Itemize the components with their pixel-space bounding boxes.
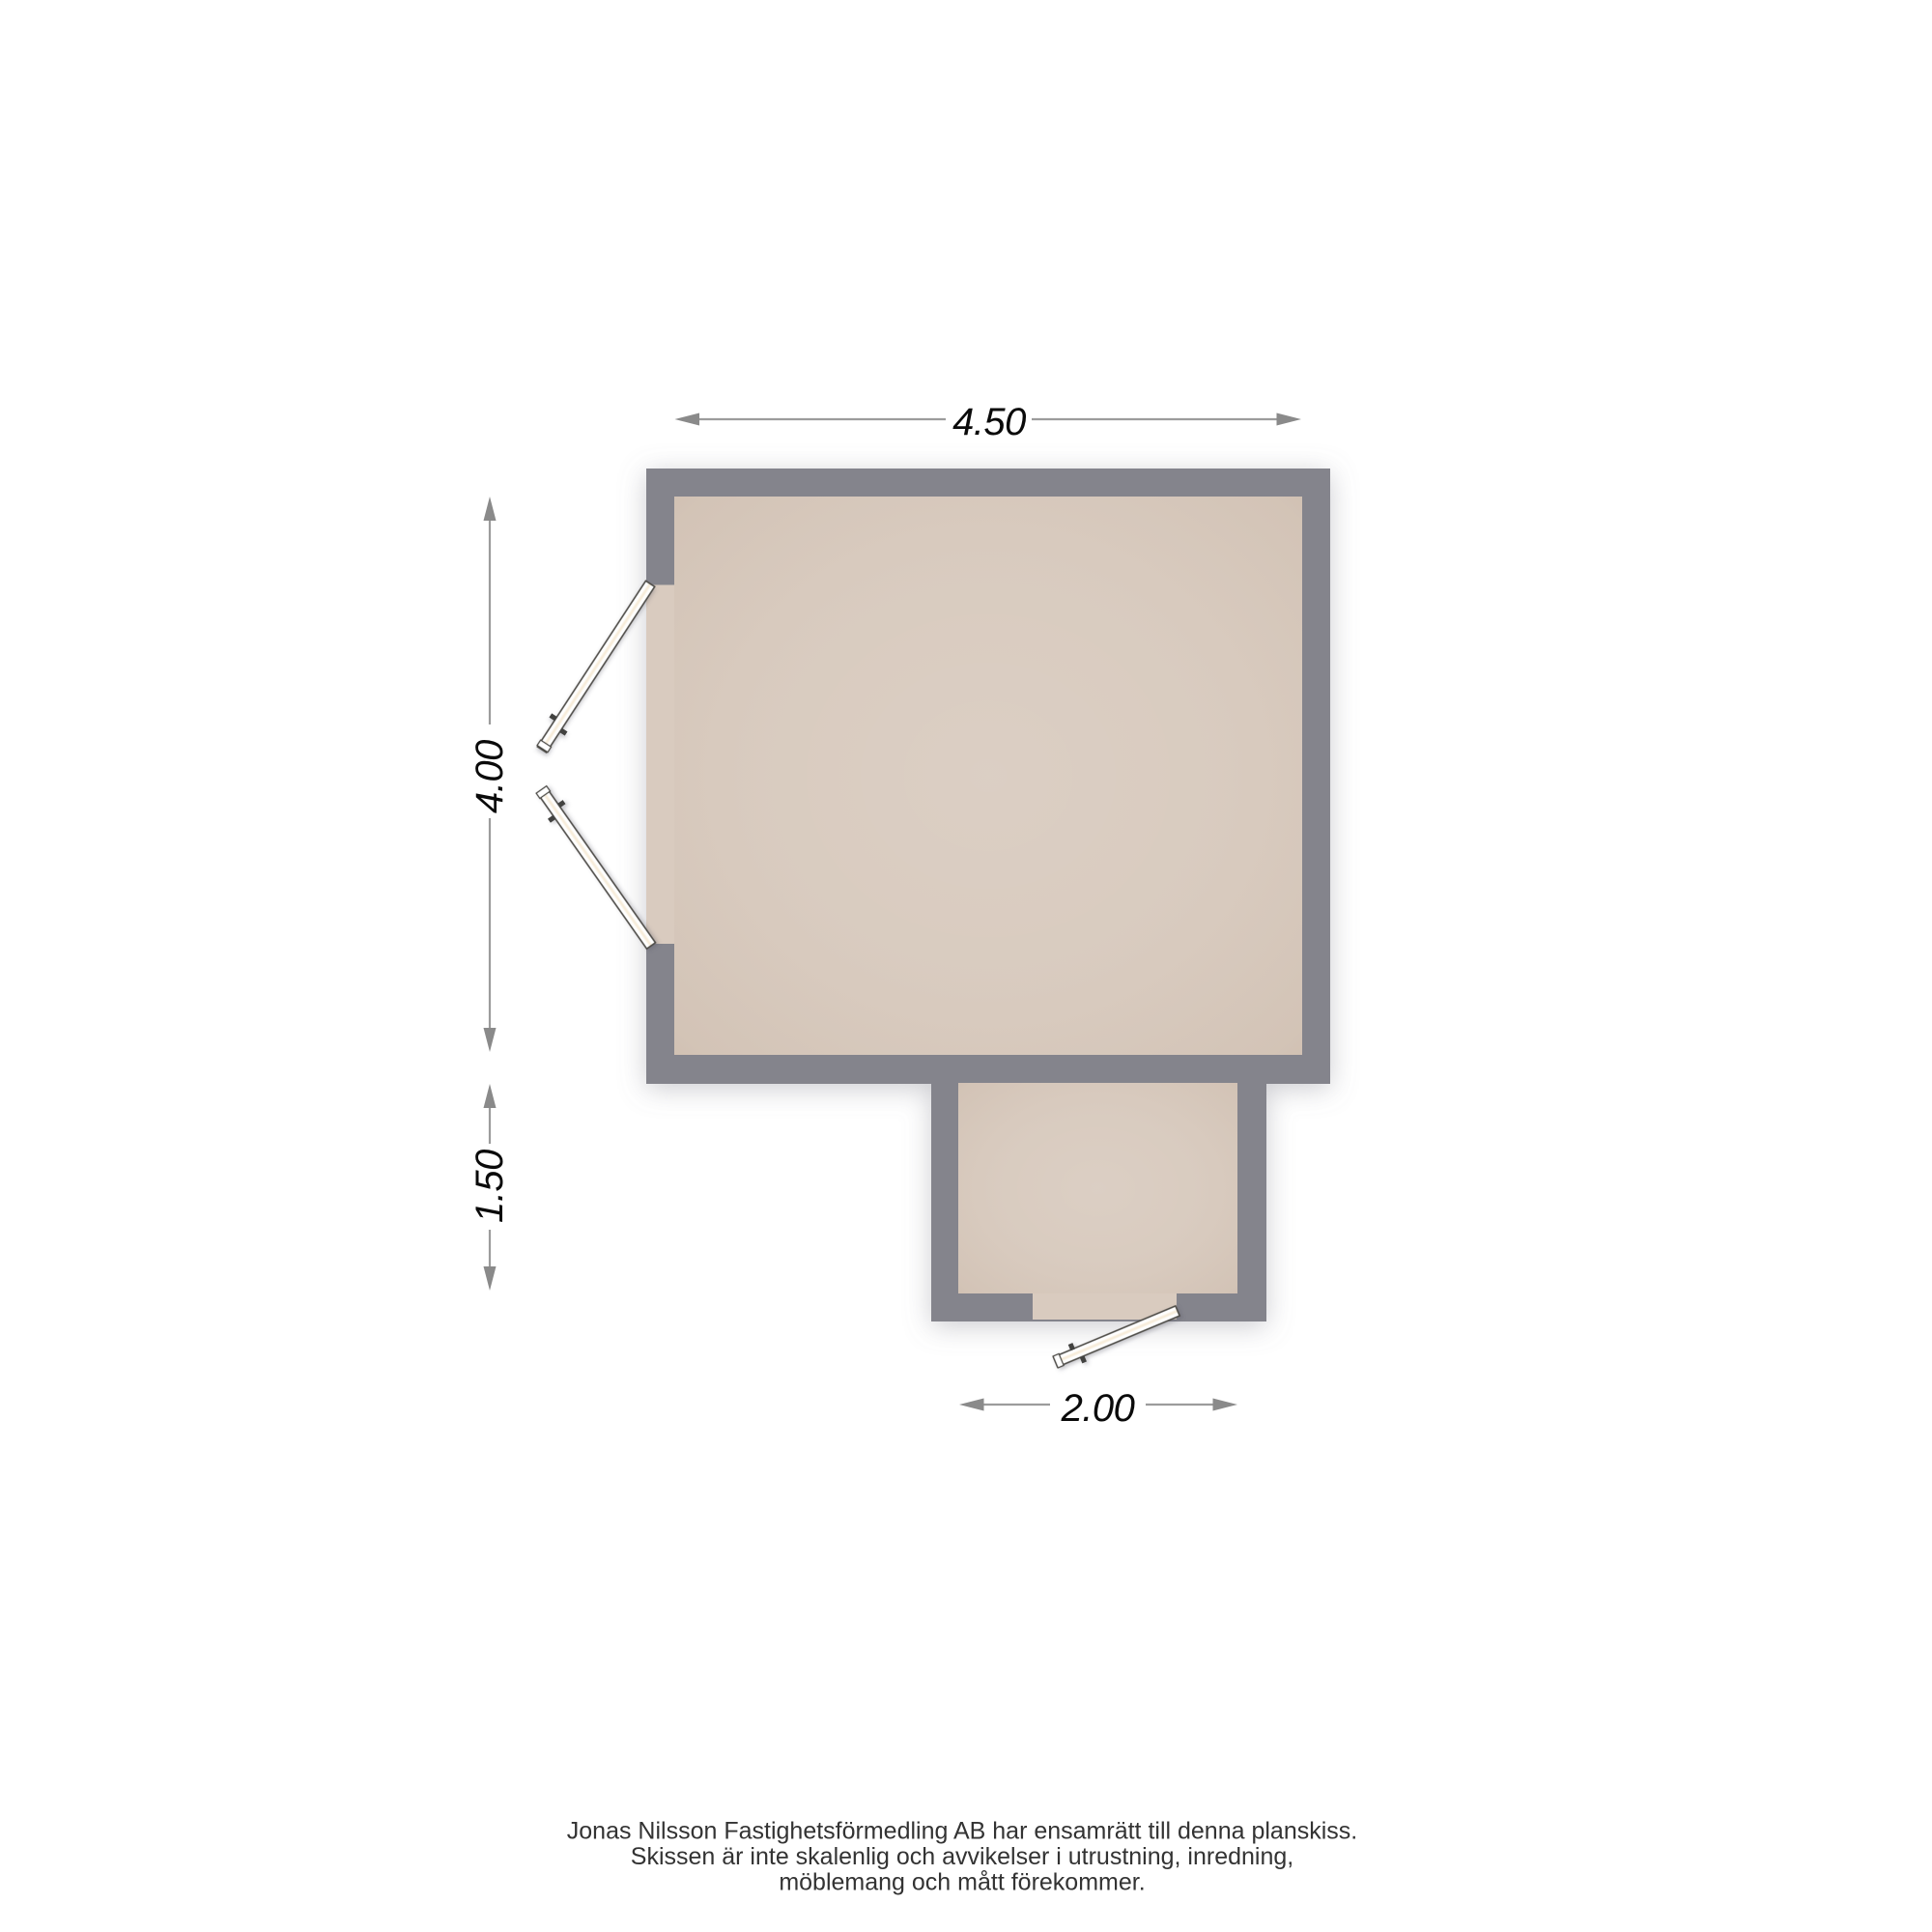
svg-text:möblemang och mått förekommer.: möblemang och mått förekommer. xyxy=(779,1869,1145,1896)
svg-text:Skissen är inte skalenlig och: Skissen är inte skalenlig och avvikelser… xyxy=(631,1843,1293,1870)
svg-text:4.00: 4.00 xyxy=(469,740,511,813)
svg-text:Jonas Nilsson Fastighetsförmed: Jonas Nilsson Fastighetsförmedling AB ha… xyxy=(567,1818,1357,1845)
svg-text:1.50: 1.50 xyxy=(469,1150,511,1223)
svg-text:4.50: 4.50 xyxy=(952,401,1026,443)
svg-text:2.00: 2.00 xyxy=(1061,1387,1135,1430)
